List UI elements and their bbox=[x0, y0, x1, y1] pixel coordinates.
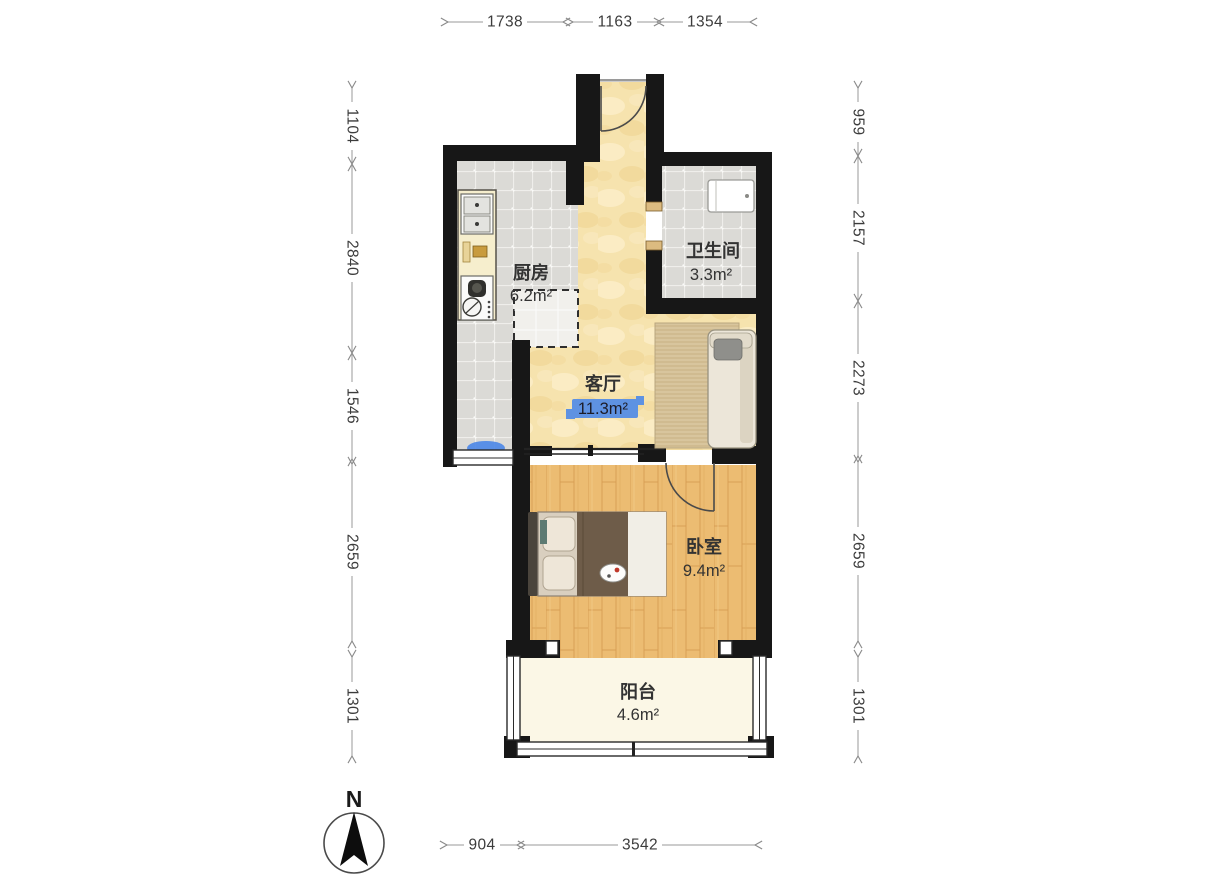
dimensions-bottom: 904 3542 bbox=[447, 836, 755, 854]
living-room-furniture bbox=[655, 323, 756, 448]
selection-handle bbox=[566, 409, 575, 419]
living-area: 11.3m² bbox=[578, 400, 629, 418]
bathroom-door-jamb bbox=[646, 241, 662, 250]
floorplan-canvas: 厨房 6.2m² 卫生间 3.3m² 客厅 11.3m² 卧室 9.4m² 阳台… bbox=[0, 0, 1232, 885]
wall-bathroom-bottom bbox=[646, 298, 758, 314]
dim-right-2: 2157 bbox=[850, 210, 867, 246]
compass-needle bbox=[340, 812, 368, 866]
pillow bbox=[543, 556, 575, 590]
sofa-cushion bbox=[714, 339, 742, 360]
dim-left-5: 1301 bbox=[344, 688, 361, 724]
dim-top-2: 1163 bbox=[598, 14, 633, 31]
kitchen-strip-floor bbox=[457, 345, 512, 453]
bedroom-area: 9.4m² bbox=[683, 562, 726, 580]
living-label: 客厅 bbox=[585, 373, 621, 394]
dim-right-1: 959 bbox=[850, 108, 867, 135]
bed-tray bbox=[600, 564, 626, 582]
wall-bedroom-door-pier bbox=[712, 446, 758, 464]
dim-left-1: 1104 bbox=[344, 109, 361, 144]
selection-handle bbox=[636, 396, 644, 405]
bathroom-door-jamb bbox=[646, 202, 662, 211]
dimensions-right: 959 2157 2273 2659 1301 bbox=[849, 88, 867, 756]
wall-bedroom-left bbox=[512, 340, 530, 658]
dim-right-4: 2659 bbox=[850, 533, 867, 569]
wall-kitchen-top bbox=[443, 145, 583, 161]
dim-left-3: 1546 bbox=[344, 388, 361, 424]
compass-north-label: N bbox=[346, 786, 363, 812]
wall-kitchen-right bbox=[566, 145, 584, 205]
dim-top-1: 1738 bbox=[487, 14, 523, 31]
wall-outer-right bbox=[756, 152, 772, 658]
bathroom-label: 卫生间 bbox=[686, 240, 740, 261]
dim-left-4: 2659 bbox=[344, 534, 361, 570]
dimensions-left: 1104 2840 1546 2659 1301 bbox=[343, 88, 361, 756]
sofa bbox=[708, 330, 756, 448]
dish-rack-icon bbox=[463, 242, 470, 262]
dim-bottom-1: 904 bbox=[468, 837, 495, 854]
kitchen-counter bbox=[458, 190, 496, 320]
balcony-label: 阳台 bbox=[620, 681, 656, 702]
dimensions-top: 1738 1163 1354 bbox=[448, 13, 750, 31]
bathroom-area: 3.3m² bbox=[690, 266, 733, 284]
dim-right-5: 1301 bbox=[850, 688, 867, 724]
blanket bbox=[577, 512, 628, 596]
pillow bbox=[543, 517, 575, 551]
bedroom-label: 卧室 bbox=[686, 536, 722, 557]
compass-north-icon: N bbox=[324, 786, 384, 873]
bed bbox=[528, 512, 666, 596]
wall-bathroom-left-upper bbox=[646, 152, 662, 210]
balcony-door-jamb-left bbox=[546, 641, 558, 655]
balcony-area: 4.6m² bbox=[617, 706, 660, 724]
kitchen-label: 厨房 bbox=[513, 262, 549, 283]
wall-outer-left bbox=[443, 145, 457, 467]
dim-left-2: 2840 bbox=[344, 240, 361, 276]
hallway-floor-lower bbox=[578, 203, 646, 316]
dim-bottom-2: 3542 bbox=[622, 837, 658, 854]
washing-machine bbox=[708, 180, 754, 212]
entry-threshold bbox=[600, 79, 646, 82]
kitchen-area: 6.2m² bbox=[510, 287, 553, 305]
dim-top-3: 1354 bbox=[687, 14, 723, 31]
dim-right-3: 2273 bbox=[850, 360, 867, 396]
entry-hall-floor bbox=[600, 82, 646, 164]
bed-sheet bbox=[628, 512, 666, 596]
wall-bathroom-top bbox=[646, 152, 772, 166]
balcony-door-jamb-right bbox=[720, 641, 732, 655]
